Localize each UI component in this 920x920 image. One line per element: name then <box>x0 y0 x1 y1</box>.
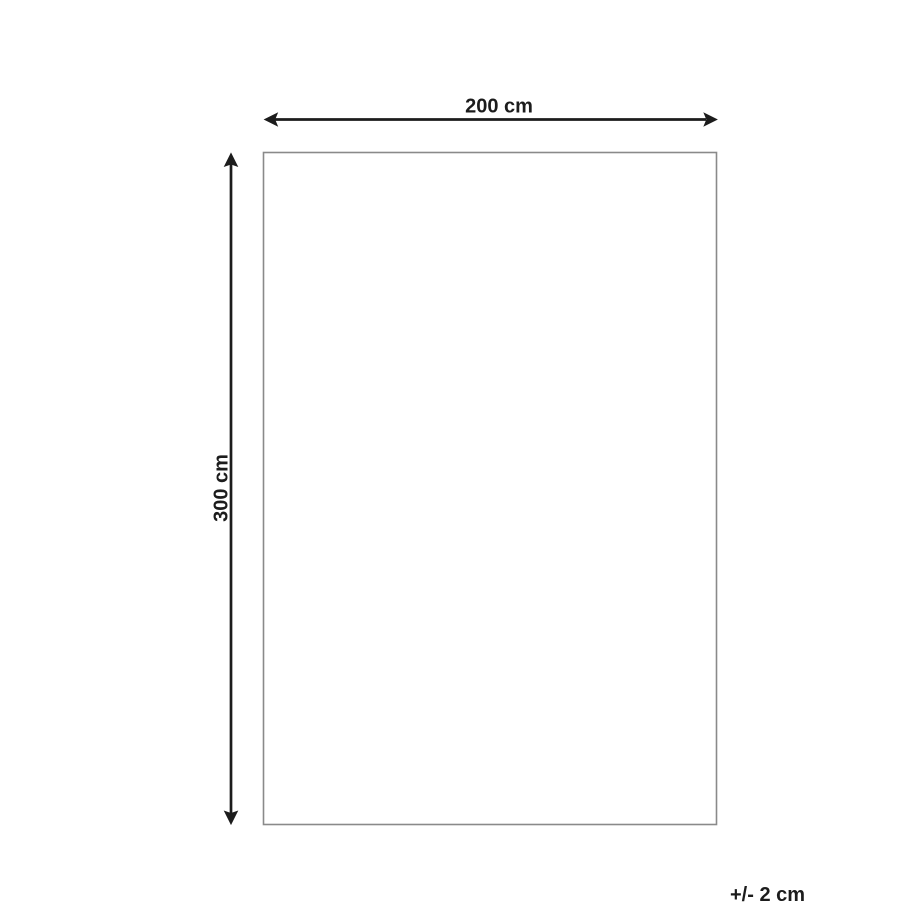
svg-text:200 cm: 200 cm <box>465 95 533 117</box>
svg-text:+/- 2 cm: +/- 2 cm <box>730 884 805 906</box>
svg-text:300 cm: 300 cm <box>211 454 233 522</box>
